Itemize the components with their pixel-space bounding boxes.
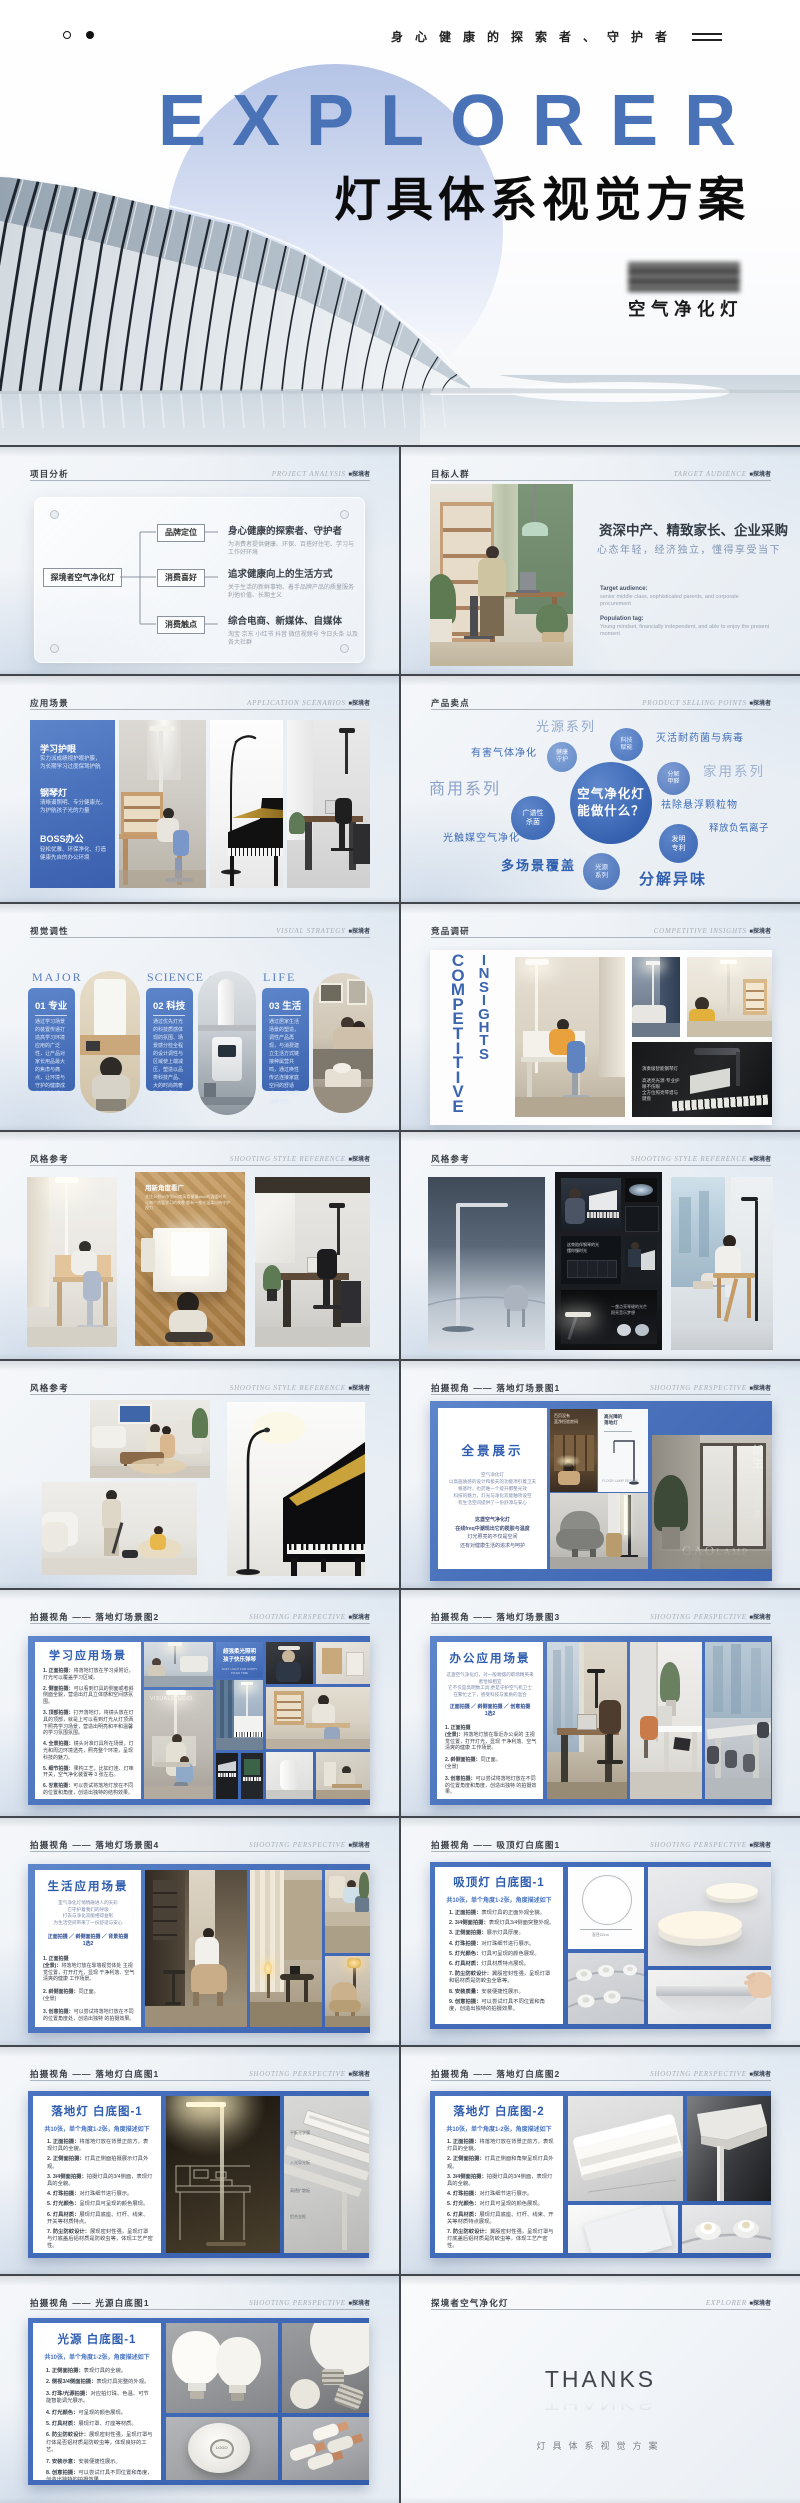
svg-text:高透扩散板: 高透扩散板 [290, 2187, 310, 2193]
svg-text:平板光学膜: 平板光学膜 [290, 2129, 310, 2135]
svg-text:入光导光板: 入光导光板 [290, 2159, 310, 2165]
svg-text:铝合金框: 铝合金框 [290, 2213, 306, 2219]
